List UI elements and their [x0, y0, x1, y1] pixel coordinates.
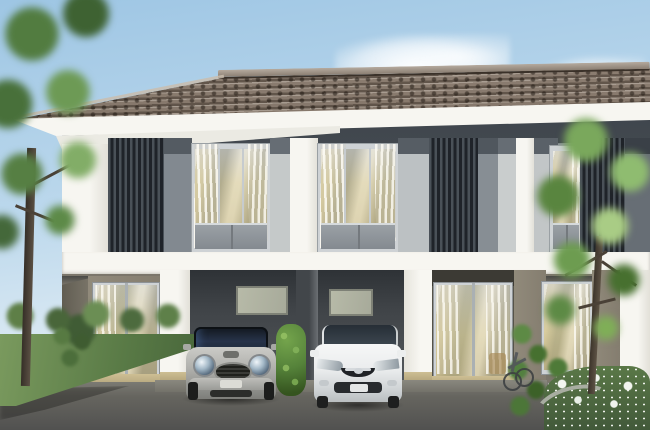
- tree-canopy-right: [506, 92, 650, 348]
- bush: [46, 316, 102, 378]
- window-spandrel: [321, 223, 395, 249]
- wheel: [188, 382, 198, 400]
- license-plate: [220, 380, 242, 388]
- curtain: [437, 285, 460, 374]
- window-mullion: [218, 148, 220, 223]
- window-mullion: [242, 148, 244, 223]
- door-stile: [472, 283, 475, 380]
- louver-screen-middle: [429, 138, 478, 254]
- wheel: [317, 396, 328, 408]
- window-mullion: [344, 148, 346, 223]
- wheel: [264, 382, 274, 400]
- frosted-window: [236, 286, 288, 315]
- side-mirror: [397, 350, 406, 357]
- glass-door-unit2: [434, 283, 512, 380]
- columnar-shrub: [276, 324, 306, 396]
- headlight: [193, 354, 216, 377]
- bicycle-wheel: [515, 368, 534, 387]
- townhouse-rendering: [0, 0, 650, 430]
- window-mullion: [369, 148, 371, 223]
- windshield: [322, 325, 398, 346]
- fog-light: [387, 380, 397, 386]
- mazda-logo: [354, 368, 363, 374]
- side-mirror: [310, 350, 319, 357]
- window-spandrel: [195, 223, 267, 249]
- tree-canopy-left: [0, 0, 142, 274]
- fog-light: [319, 380, 329, 386]
- wheel: [388, 396, 399, 408]
- upper-window-left: [192, 144, 270, 252]
- lower-intake: [210, 390, 252, 397]
- upper-window-right: [318, 144, 398, 252]
- frosted-window: [329, 289, 373, 316]
- license-plate: [350, 384, 368, 392]
- side-mirror: [183, 344, 191, 350]
- mazda-car: [314, 316, 402, 410]
- mini-cooper-car: [186, 316, 276, 402]
- hood-scoop: [223, 351, 239, 358]
